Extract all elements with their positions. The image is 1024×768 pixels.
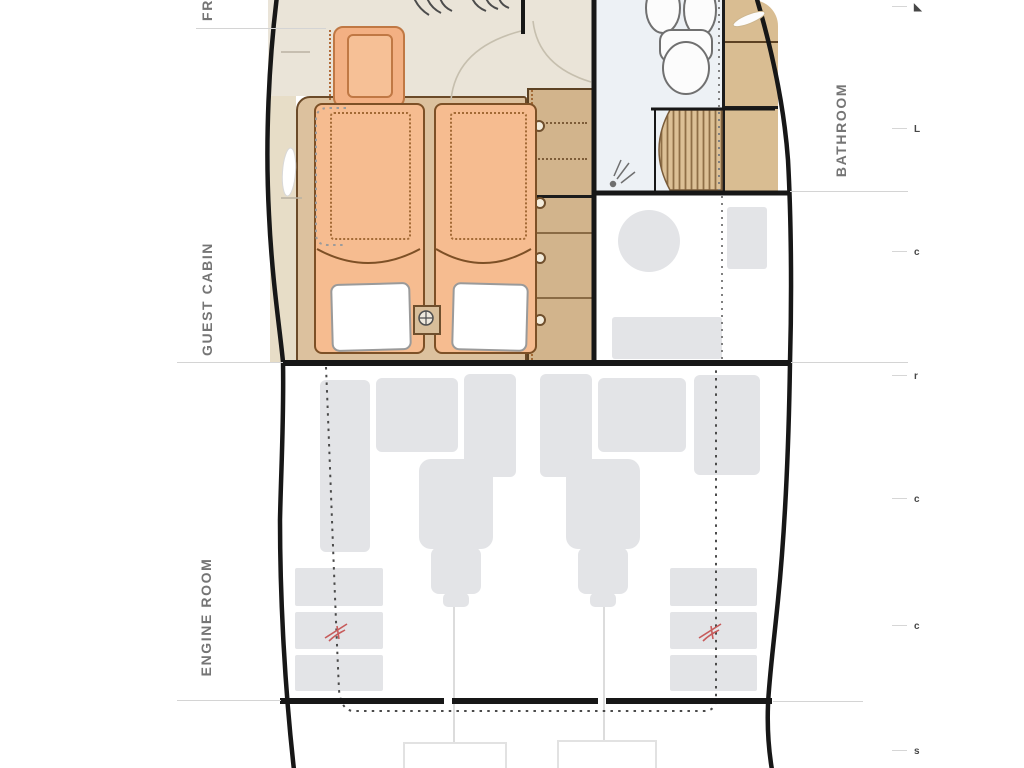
- engine-silhouette-starboard: [566, 459, 640, 607]
- seat-block: [727, 207, 767, 269]
- engine-silhouette-port: [419, 459, 493, 607]
- label-guest-cabin: GUEST CABIN: [196, 224, 218, 374]
- engine-room-unit: [540, 374, 592, 477]
- engine-room-box: [670, 568, 757, 606]
- cabinet-divider: [725, 41, 778, 43]
- scale-dash: [892, 251, 907, 252]
- engine-room-box: [295, 655, 383, 691]
- cabinet-divider: [725, 106, 778, 109]
- wardrobe-shelf: [529, 232, 594, 234]
- engine-room-unit: [376, 378, 458, 452]
- bathroom-floor: [594, 0, 724, 193]
- leader-line: [791, 362, 908, 363]
- stern-locker: [557, 740, 657, 768]
- label-bow-area: FR: [197, 0, 217, 32]
- wardrobe-dot-row: [535, 158, 587, 160]
- pillow-port: [330, 282, 412, 352]
- engine-room-unit: [598, 378, 686, 452]
- table-circle: [618, 210, 680, 272]
- scale-dash: [892, 750, 907, 751]
- scale-dash: [892, 375, 907, 376]
- bathroom-cabinet: [722, 0, 778, 193]
- label-bathroom: BATHROOM: [830, 70, 852, 190]
- engine-room-box: [670, 655, 757, 691]
- engine-room-box: [670, 612, 757, 649]
- scale-mark: c: [914, 621, 920, 633]
- entry-floor: [268, 0, 594, 96]
- leader-line: [177, 700, 281, 701]
- leader-line: [790, 191, 908, 192]
- engine-room-box: [295, 612, 383, 649]
- cabin-seat-cushion: [347, 34, 393, 98]
- scale-mark: c: [914, 494, 920, 506]
- scale-mark: ◣: [914, 2, 922, 14]
- label-engine-room: ENGINE ROOM: [195, 542, 217, 692]
- cabin-seat-dotted-edge: [329, 30, 331, 100]
- engine-room-unit: [464, 374, 516, 477]
- leader-line: [177, 362, 283, 363]
- bed-port-blanket: [330, 112, 411, 240]
- bed-starboard-blanket: [450, 112, 527, 240]
- scale-mark: L: [914, 124, 920, 136]
- engine-room-unit: [694, 375, 760, 475]
- scale-dash: [892, 498, 907, 499]
- scale-mark: c: [914, 247, 920, 259]
- wardrobe-shelf: [529, 297, 594, 299]
- engine-room-tank: [320, 380, 370, 552]
- step-block: [612, 317, 722, 359]
- scale-dash: [892, 625, 907, 626]
- scale-dash: [892, 6, 907, 7]
- scale-mark: s: [914, 746, 920, 758]
- between-beds-fitting: [413, 305, 441, 335]
- leader-line: [773, 701, 863, 702]
- scale-dash: [892, 128, 907, 129]
- yacht-deck-plan: FR GUEST CABIN ENGINE ROOM BATHROOM ◣ L …: [0, 0, 1024, 768]
- stern-locker: [403, 742, 507, 768]
- engine-room-box: [295, 568, 383, 606]
- pillow-starboard: [451, 282, 529, 352]
- cabin-side-floor: [270, 96, 296, 362]
- scale-mark: r: [914, 371, 918, 383]
